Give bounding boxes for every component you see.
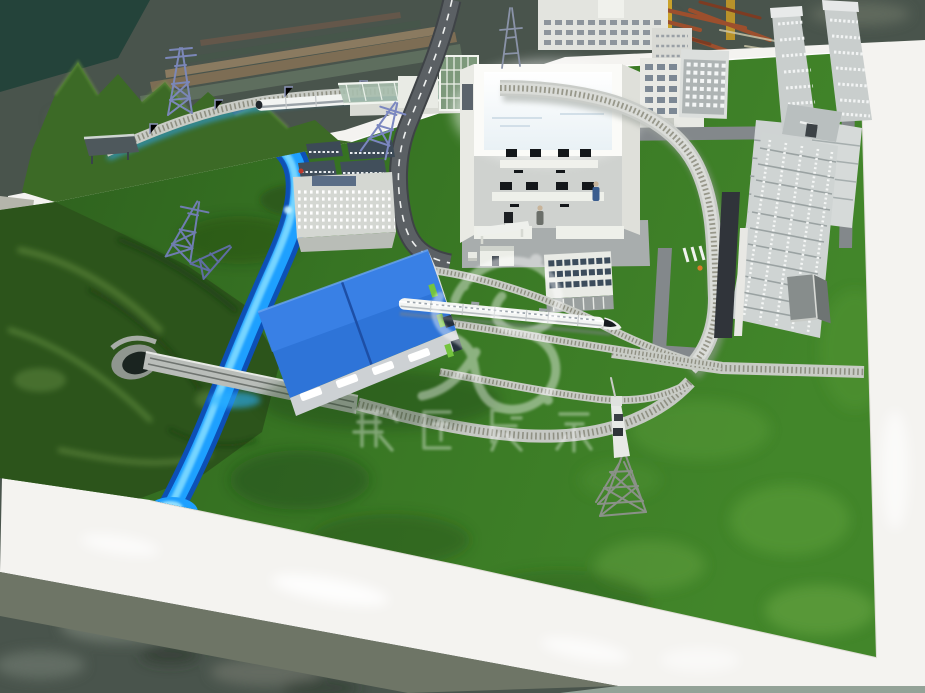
front-wall-stub bbox=[556, 226, 624, 239]
model-scene bbox=[0, 0, 925, 693]
lit-office-building bbox=[293, 172, 396, 252]
floor-sliver bbox=[560, 686, 925, 693]
office-chair bbox=[504, 212, 513, 223]
right-wall bbox=[622, 64, 640, 235]
red-marker-prop bbox=[299, 169, 304, 174]
cap-door bbox=[805, 123, 818, 137]
tower-head bbox=[611, 396, 622, 406]
wall-window-cut bbox=[462, 84, 473, 110]
roof-glass-strip bbox=[312, 176, 356, 186]
antenna-panel bbox=[613, 428, 623, 436]
window-grid bbox=[544, 20, 661, 45]
bridge-led-glow bbox=[209, 392, 261, 408]
skyscraper-block bbox=[679, 49, 729, 119]
yellow-pole-prop bbox=[726, 0, 735, 40]
model-photo bbox=[0, 0, 925, 693]
pedestrian-figure bbox=[697, 265, 702, 270]
antenna-panel bbox=[614, 414, 623, 421]
